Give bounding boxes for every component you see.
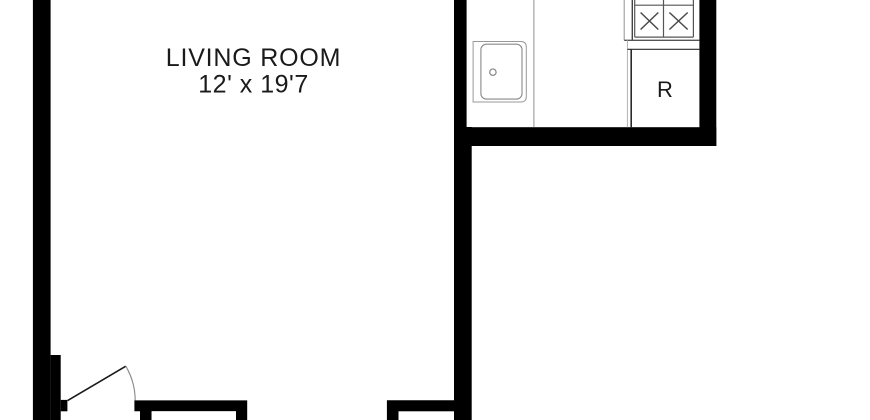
svg-text:R: R — [657, 77, 673, 102]
svg-text:12' x 19'7: 12' x 19'7 — [198, 71, 308, 99]
svg-text:LIVING ROOM: LIVING ROOM — [166, 44, 342, 72]
